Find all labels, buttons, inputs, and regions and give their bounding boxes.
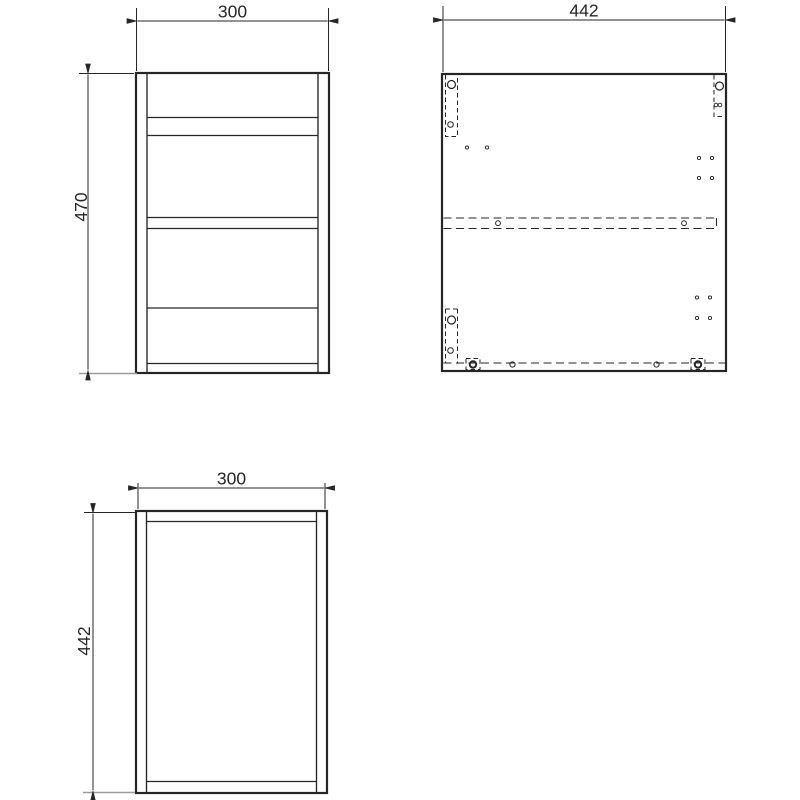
side-panel-width-dimension: 442 xyxy=(443,1,726,73)
top-view xyxy=(136,511,327,793)
front-width-dimension-label: 300 xyxy=(218,2,247,22)
front-view xyxy=(136,73,329,373)
cabinet-technical-drawing: 300 470 xyxy=(0,0,800,800)
front-height-dimension: 470 xyxy=(71,74,137,374)
front-width-dimension: 300 xyxy=(137,2,329,72)
top-view-depth-dimension-label: 442 xyxy=(74,626,94,655)
top-view-width-dimension-label: 300 xyxy=(217,469,246,489)
front-height-dimension-label: 470 xyxy=(71,192,91,221)
top-view-width-dimension: 300 xyxy=(138,469,325,510)
top-view-outline xyxy=(136,511,327,793)
side-panel-outline xyxy=(442,74,726,371)
side-panel-view xyxy=(442,74,726,371)
side-panel-width-dimension-label: 442 xyxy=(569,1,598,21)
top-view-depth-dimension: 442 xyxy=(74,513,135,793)
